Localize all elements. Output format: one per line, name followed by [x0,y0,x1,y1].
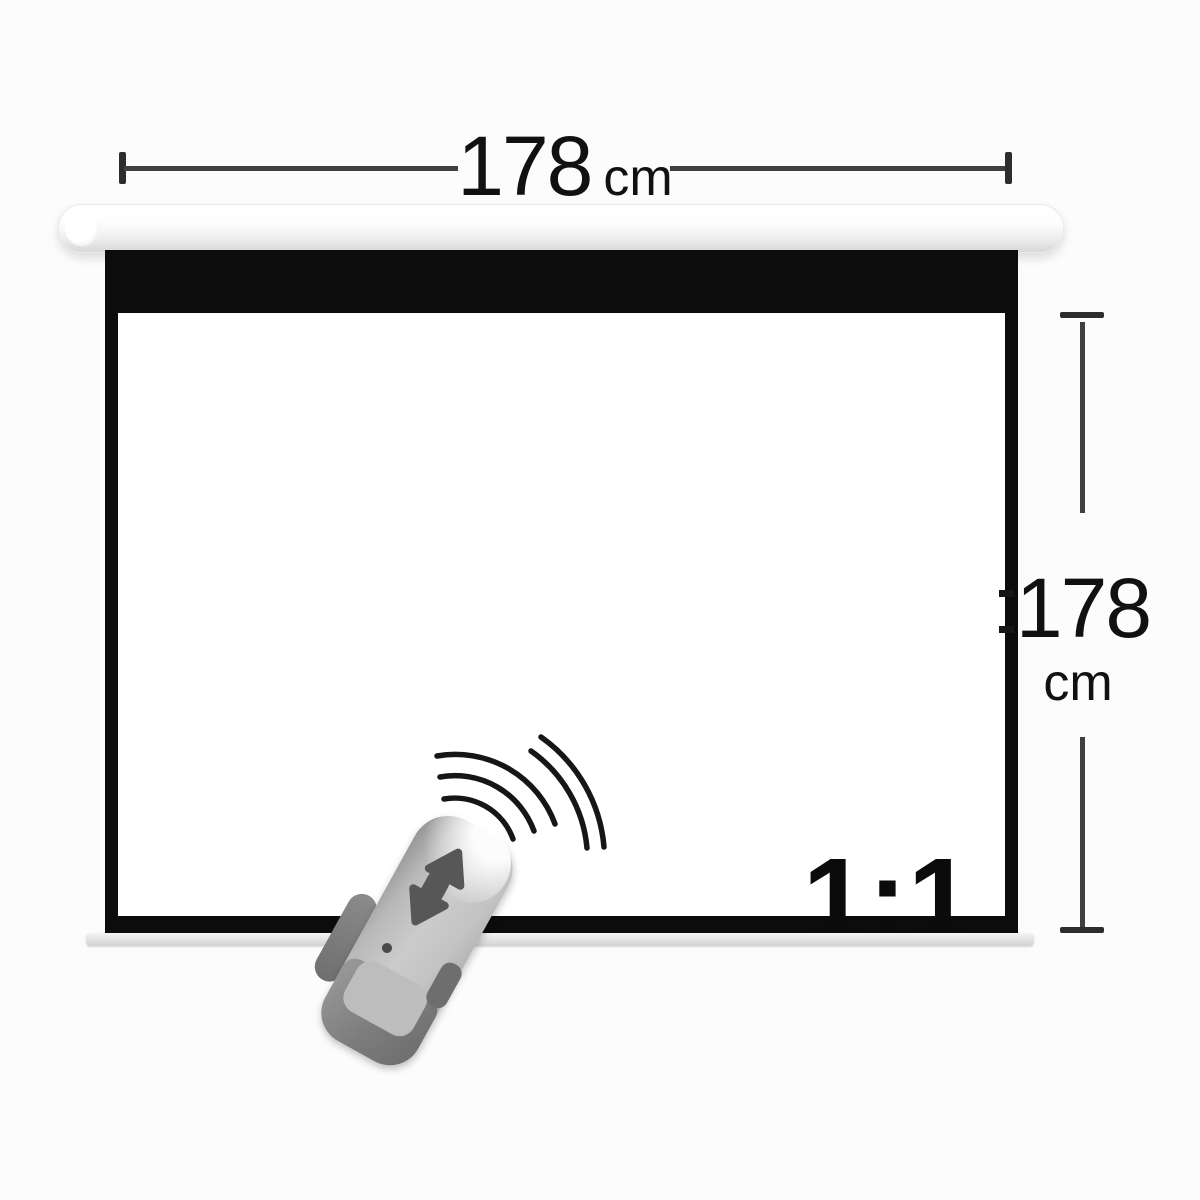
height-dimension-tick-top [1060,312,1104,318]
ir-led-icon [380,941,394,955]
signal-arc-5 [541,737,604,847]
width-dimension-tick-right [1005,152,1012,184]
screen-bottom-slat [86,933,1034,946]
height-dimension-tick-bottom [1060,927,1104,933]
screen-housing [58,204,1064,253]
height-value: 178 [1008,566,1158,650]
width-dimension-line-left [124,166,458,171]
width-dimension-line-right [670,166,1008,171]
width-value: 178 [457,124,591,208]
width-unit: cm [603,152,672,204]
width-dimension-label: 178 cm [455,124,675,208]
height-dimension-line-lower [1080,737,1085,927]
height-dimension-line-upper [1080,322,1085,513]
height-unit: cm [1008,657,1148,709]
product-illustration: 178 cm 1:1 178 cm [0,0,1200,1200]
